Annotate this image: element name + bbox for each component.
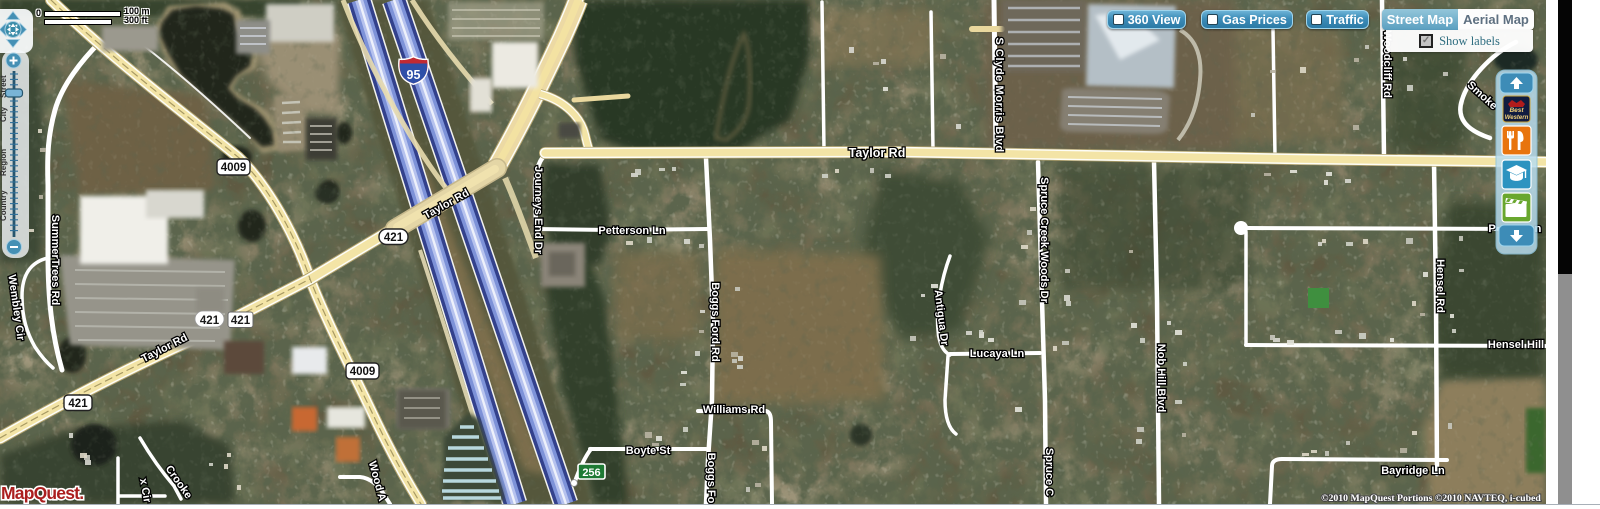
svg-text:Nob Hill Blvd: Nob Hill Blvd (1155, 344, 1167, 412)
svg-text:256: 256 (582, 467, 600, 479)
svg-text:Bayridge Ln: Bayridge Ln (1381, 465, 1445, 477)
svg-text:4009: 4009 (221, 162, 247, 174)
svg-text:Best: Best (1509, 107, 1524, 114)
svg-text:421: 421 (384, 232, 404, 244)
svg-text:Region: Region (0, 149, 8, 176)
svg-text:Boyte St: Boyte St (626, 445, 671, 457)
svg-text:421: 421 (231, 315, 251, 327)
svg-text:Country: Country (0, 190, 8, 221)
svg-text:Spruce Creek Woods Dr: Spruce Creek Woods Dr (1038, 177, 1050, 303)
svg-text:Williams Rd: Williams Rd (703, 404, 765, 416)
svg-text:Hensel Rd: Hensel Rd (1434, 259, 1446, 313)
svg-text:©2010 MapQuest Portions ©2010: ©2010 MapQuest Portions ©2010 NAVTEQ, i-… (1321, 493, 1541, 504)
svg-text:Western: Western (1505, 115, 1529, 121)
svg-text:Boggs Ford Rd: Boggs Ford Rd (709, 282, 721, 361)
svg-text:Lucaya Ln: Lucaya Ln (970, 348, 1025, 360)
svg-text:Hensel Hill: Hensel Hill (1488, 339, 1544, 351)
svg-text:421: 421 (68, 398, 88, 410)
svg-text:S Clyde Morris Blvd: S Clyde Morris Blvd (993, 37, 1005, 152)
svg-text:Spruce C: Spruce C (1043, 448, 1055, 496)
svg-text:95: 95 (407, 68, 421, 82)
svg-text:Petterson Ln: Petterson Ln (598, 225, 666, 237)
svg-text:421: 421 (200, 315, 220, 327)
svg-text:MapQuest.: MapQuest. (1, 483, 83, 503)
svg-text:City: City (0, 106, 8, 122)
svg-text:Boggs Fo: Boggs Fo (705, 453, 717, 504)
svg-text:Journeys End Dr: Journeys End Dr (532, 166, 544, 255)
svg-text:4009: 4009 (350, 366, 376, 378)
svg-text:Taylor Rd: Taylor Rd (849, 146, 906, 160)
